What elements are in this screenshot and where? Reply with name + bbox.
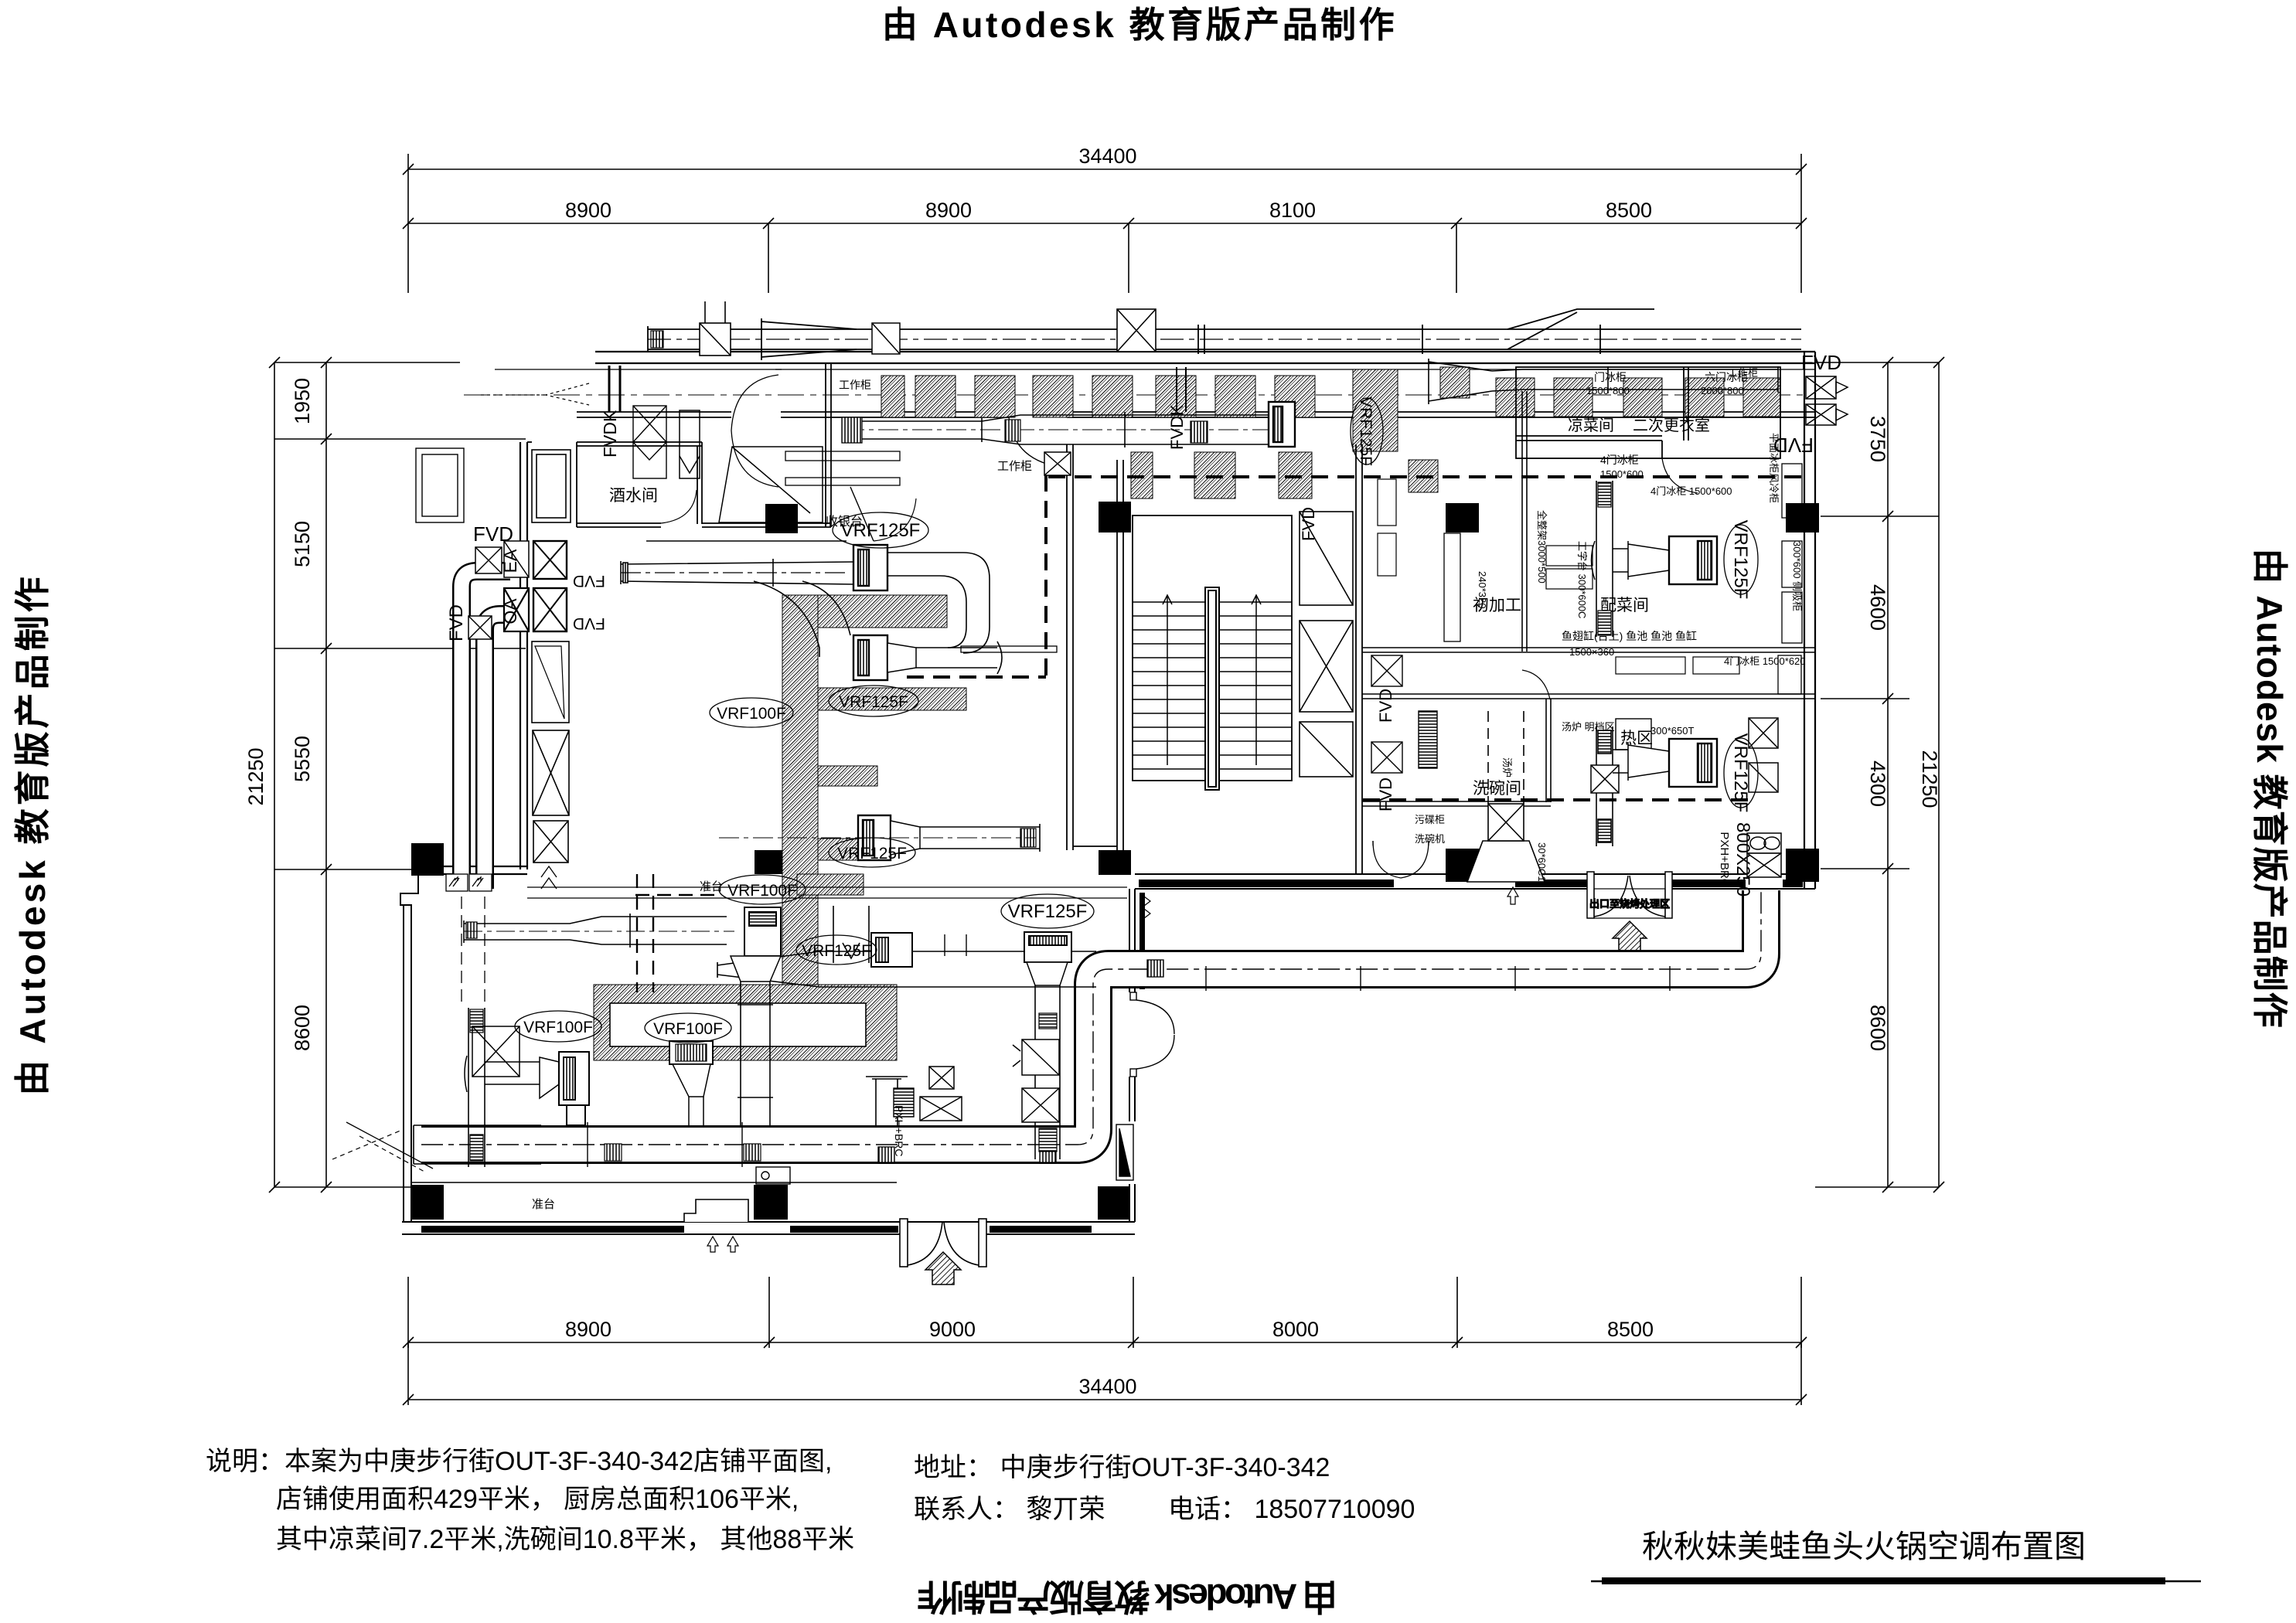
svg-text:VRF100F: VRF100F <box>523 1019 593 1036</box>
svg-text:1950: 1950 <box>291 378 314 424</box>
svg-text:4门冰柜: 4门冰柜 <box>1600 454 1639 466</box>
svg-text:VRF125F: VRF125F <box>802 942 871 960</box>
svg-text:FVD: FVD <box>446 604 467 641</box>
svg-text:店铺使用面积429平米， 厨房总面积106平米,: 店铺使用面积429平米， 厨房总面积106平米, <box>276 1485 799 1514</box>
svg-text:8500: 8500 <box>1607 1318 1654 1341</box>
svg-text:8600: 8600 <box>1866 1005 1889 1051</box>
svg-text:FVD: FVD <box>1376 777 1395 811</box>
svg-text:由 Autodesk 教育版产品制作: 由 Autodesk 教育版产品制作 <box>918 1577 1337 1617</box>
svg-text:5150: 5150 <box>291 521 314 567</box>
svg-text:污碟柜: 污碟柜 <box>1415 814 1445 825</box>
svg-text:出口至烧烤处理区: 出口至烧烤处理区 <box>1589 898 1670 910</box>
svg-text:电话： 18507710090: 电话： 18507710090 <box>1168 1495 1415 1524</box>
svg-text:由 Autodesk 教育版产品制作: 由 Autodesk 教育版产品制作 <box>2250 548 2290 1028</box>
svg-text:工作柜: 工作柜 <box>997 460 1032 473</box>
svg-text:FVD: FVD <box>1376 689 1395 723</box>
svg-text:21250: 21250 <box>1918 750 1941 808</box>
svg-text:21250: 21250 <box>244 747 267 805</box>
svg-text:凉菜间: 凉菜间 <box>1568 417 1614 434</box>
svg-text:热区: 热区 <box>1620 730 1653 747</box>
svg-text:二次更衣室: 二次更衣室 <box>1633 417 1710 434</box>
svg-text:门冰柜: 门冰柜 <box>1594 371 1627 383</box>
svg-text:1500*800: 1500*800 <box>1586 385 1630 396</box>
svg-text:VRF125F: VRF125F <box>839 693 908 711</box>
svg-text:洗碗机: 洗碗机 <box>1415 833 1445 845</box>
svg-text:FVD: FVD <box>1801 351 1841 374</box>
svg-text:1500×360: 1500×360 <box>1569 646 1614 658</box>
svg-text:六门冰柜: 六门冰柜 <box>1705 371 1748 383</box>
svg-text:FVDK: FVDK <box>1167 404 1187 450</box>
svg-text:300*650T: 300*650T <box>1650 725 1694 737</box>
svg-text:9000: 9000 <box>929 1318 976 1341</box>
svg-text:3750: 3750 <box>1866 416 1889 462</box>
svg-text:FVDK: FVDK <box>600 410 620 458</box>
svg-text:工作柜: 工作柜 <box>839 379 871 391</box>
svg-text:34400: 34400 <box>1078 1375 1136 1398</box>
svg-text:8600: 8600 <box>291 1005 314 1051</box>
svg-text:VRF125F: VRF125F <box>1008 901 1088 922</box>
svg-text:鱼翅缸(台上) 鱼池 鱼池 鱼缸: 鱼翅缸(台上) 鱼池 鱼池 鱼缸 <box>1562 630 1697 642</box>
svg-text:FVD: FVD <box>573 572 605 590</box>
svg-text:联系人： 黎丌荣: 联系人： 黎丌荣 <box>914 1495 1105 1524</box>
svg-text:4600: 4600 <box>1866 584 1889 631</box>
svg-text:4300: 4300 <box>1866 760 1889 807</box>
svg-text:FVD: FVD <box>573 614 605 632</box>
svg-text:PXH+BRC: PXH+BRC <box>1718 832 1731 886</box>
svg-text:工字台 300*600C: 工字台 300*600C <box>1576 541 1588 618</box>
svg-text:平面冰柜风冷柜: 平面冰柜风冷柜 <box>1768 433 1780 503</box>
svg-text:8900: 8900 <box>565 199 611 222</box>
svg-text:VRF125F: VRF125F <box>1357 396 1375 466</box>
svg-text:PXH+BRC: PXH+BRC <box>893 1105 905 1157</box>
svg-text:酒水间: 酒水间 <box>609 487 658 505</box>
svg-text:30*60C11: 30*60C11 <box>1536 842 1548 886</box>
svg-text:由 Autodesk 教育版产品制作: 由 Autodesk 教育版产品制作 <box>12 573 53 1095</box>
svg-text:5550: 5550 <box>291 736 314 782</box>
svg-text:VRF100F: VRF100F <box>717 705 786 723</box>
svg-text:洗碗间: 洗碗间 <box>1473 780 1521 798</box>
svg-text:VRF100F: VRF100F <box>653 1020 723 1038</box>
svg-text:300*600 侧吸柜: 300*600 侧吸柜 <box>1791 541 1803 611</box>
svg-text:240*320: 240*320 <box>1477 571 1488 608</box>
svg-text:800X250: 800X250 <box>1732 822 1753 897</box>
svg-text:8000: 8000 <box>1272 1318 1319 1341</box>
svg-text:准台: 准台 <box>532 1198 555 1211</box>
svg-text:1500*600: 1500*600 <box>1600 468 1644 480</box>
svg-text:OA: OA <box>500 598 520 624</box>
svg-text:8900: 8900 <box>925 199 972 222</box>
svg-text:8100: 8100 <box>1269 199 1316 222</box>
svg-text:全整架3000*500: 全整架3000*500 <box>1536 510 1548 584</box>
svg-text:FVD: FVD <box>1299 507 1318 541</box>
svg-text:汤炉 明档区: 汤炉 明档区 <box>1562 721 1615 733</box>
svg-text:VRF125F: VRF125F <box>1730 733 1751 813</box>
svg-text:汤炉: 汤炉 <box>1501 757 1513 777</box>
svg-text:地址： 中庚步行街OUT-3F-340-342: 地址： 中庚步行街OUT-3F-340-342 <box>914 1453 1330 1482</box>
svg-text:8900: 8900 <box>565 1318 611 1341</box>
svg-text:VRF100F: VRF100F <box>727 882 797 900</box>
svg-text:2000*800: 2000*800 <box>1701 385 1744 396</box>
svg-text:其中凉菜间7.2平米,洗碗间10.8平米， 其他88平米: 其中凉菜间7.2平米,洗碗间10.8平米， 其他88平米 <box>276 1525 854 1554</box>
svg-text:4门冰柜 1500*600: 4门冰柜 1500*600 <box>1650 485 1732 497</box>
svg-text:8500: 8500 <box>1606 199 1652 222</box>
svg-text:VRF125F: VRF125F <box>1730 520 1751 600</box>
svg-text:秋秋妹美蛙鱼头火锅空调布置图: 秋秋妹美蛙鱼头火锅空调布置图 <box>1642 1529 2086 1564</box>
svg-text:说明：本案为中庚步行街OUT-3F-340-342店铺平面图: 说明：本案为中庚步行街OUT-3F-340-342店铺平面图, <box>206 1447 832 1476</box>
svg-text:由 Autodesk 教育版产品制作: 由 Autodesk 教育版产品制作 <box>882 5 1397 45</box>
svg-text:EA: EA <box>500 549 520 573</box>
svg-text:4门冰柜 1500*620: 4门冰柜 1500*620 <box>1724 655 1806 667</box>
svg-text:VRF125F: VRF125F <box>837 845 907 863</box>
svg-text:34400: 34400 <box>1078 145 1136 168</box>
